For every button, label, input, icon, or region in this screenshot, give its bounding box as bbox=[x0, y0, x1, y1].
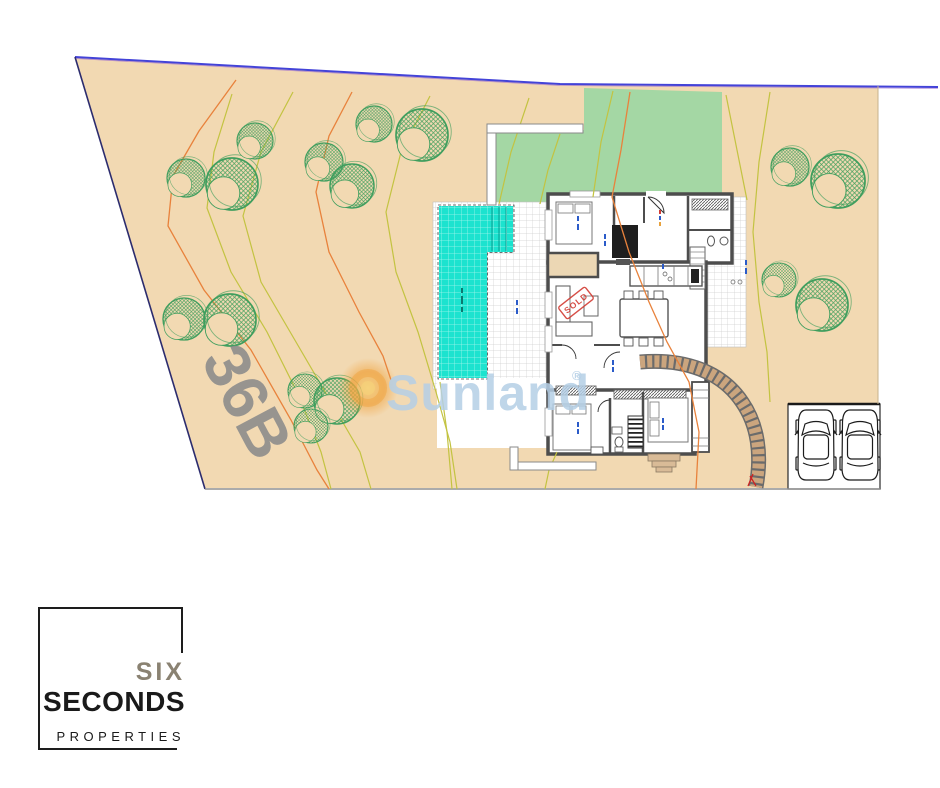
porch bbox=[548, 253, 598, 277]
toilet bbox=[708, 236, 715, 246]
logo-word-seconds: SECONDS bbox=[0, 688, 185, 716]
dining-table bbox=[620, 299, 668, 337]
closet bbox=[692, 199, 728, 210]
logo-word-properties: PROPERTIES bbox=[0, 730, 185, 743]
car-icon bbox=[795, 410, 837, 480]
logo-word-six: SIX bbox=[0, 660, 185, 685]
six-seconds-logo: SIX SECONDS PROPERTIES bbox=[38, 607, 183, 750]
sink bbox=[612, 427, 622, 434]
car-icon bbox=[839, 410, 881, 480]
registered-mark: ® bbox=[572, 368, 582, 383]
pool-label-marks bbox=[461, 288, 463, 312]
parking-area bbox=[788, 404, 881, 489]
side-steps bbox=[692, 382, 709, 452]
toilet bbox=[615, 437, 623, 447]
page: SOLD bbox=[0, 0, 940, 788]
stairs bbox=[628, 416, 643, 448]
sunland-watermark: Sunland ® bbox=[338, 358, 590, 421]
watermark-brand: Sunland bbox=[386, 365, 590, 421]
site-plan: SOLD bbox=[0, 0, 940, 520]
sink bbox=[720, 237, 728, 245]
wardrobe bbox=[612, 225, 638, 258]
